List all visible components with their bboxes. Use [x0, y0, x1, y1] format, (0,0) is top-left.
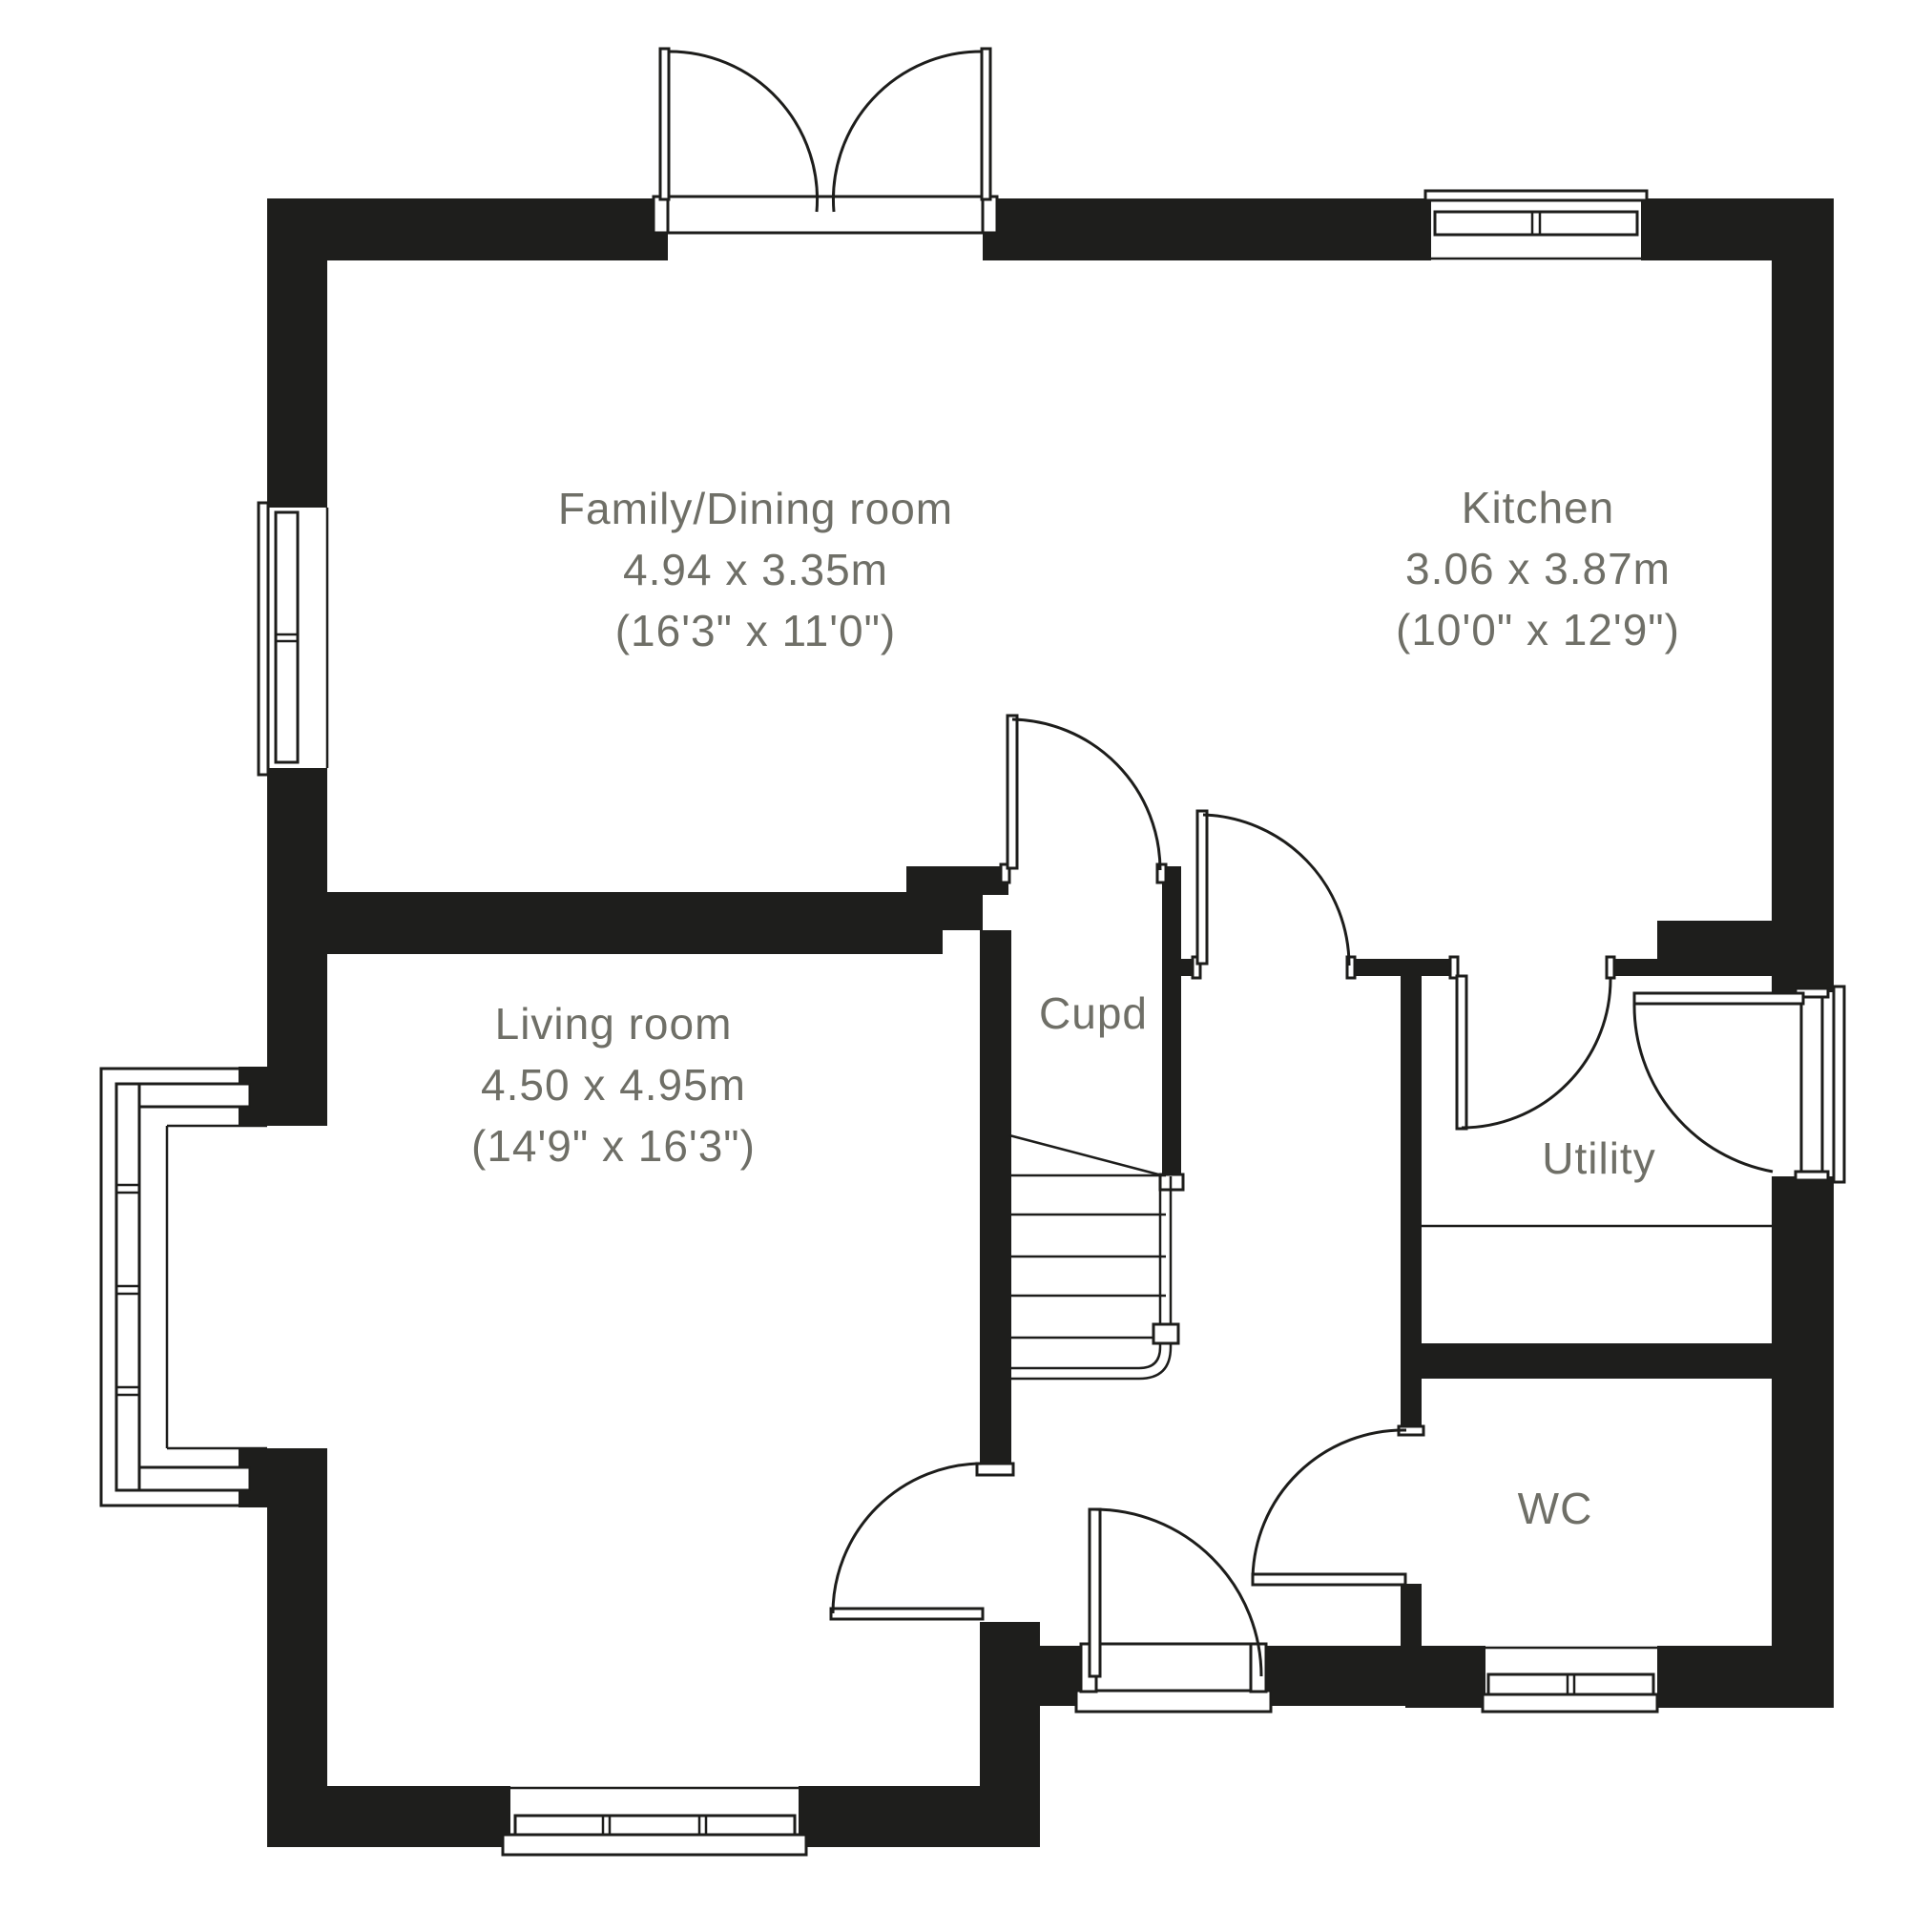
kitchen-size-metric: 3.06 x 3.87m [1405, 544, 1671, 593]
kitchen-door-swing-arc [1203, 815, 1349, 966]
stair-cut-line [1009, 1135, 1162, 1175]
stair-rail-curve-outer [1011, 1343, 1171, 1379]
french-door-right-swing-arc [833, 52, 982, 212]
family-dining-room-size-imperial: (16'3" x 11'0") [615, 606, 897, 655]
kitchen-door [1193, 811, 1355, 978]
bay-window [101, 1069, 267, 1506]
family-dining-room-size-metric: 4.94 x 3.35m [623, 545, 888, 594]
utility-door [1450, 957, 1614, 1129]
kitchen-window [1425, 191, 1647, 259]
wc-door [1253, 1426, 1423, 1585]
family-room-door-swing-arc [1012, 719, 1160, 870]
front-door [1076, 1509, 1271, 1712]
family-dining-room-label: Family/Dining room [558, 484, 953, 533]
living-room-size-imperial: (14'9" x 16'3") [471, 1121, 756, 1171]
cupboard-label: Cupd [1039, 988, 1148, 1038]
living-room-label: Living room [495, 999, 733, 1049]
family-room-door [1001, 716, 1166, 883]
living-room-window [503, 1788, 806, 1855]
family-room-window [259, 503, 327, 775]
wc-label: WC [1518, 1484, 1593, 1533]
staircase [1009, 1135, 1183, 1379]
living-room-door [831, 1464, 1013, 1619]
stair-rail-curve-inner [1011, 1343, 1160, 1368]
living-room-door-swing-arc [833, 1464, 983, 1613]
stair-newel-post [1153, 1324, 1178, 1343]
wc-door-swing-arc [1253, 1430, 1406, 1579]
exterior-walls [239, 198, 1834, 1847]
french-doors [654, 49, 997, 233]
kitchen-size-imperial: (10'0" x 12'9") [1396, 605, 1680, 654]
french-door-left-swing-arc [669, 52, 818, 212]
floor-plan-canvas: Family/Dining room 4.94 x 3.35m (16'3" x… [0, 0, 1932, 1932]
living-room-size-metric: 4.50 x 4.95m [481, 1060, 746, 1110]
utility-back-door [1634, 987, 1844, 1182]
kitchen-label: Kitchen [1462, 483, 1614, 532]
wc-window [1483, 1648, 1657, 1712]
floor-plan-page: Family/Dining room 4.94 x 3.35m (16'3" x… [0, 0, 1932, 1932]
utility-label: Utility [1542, 1133, 1655, 1183]
utility-door-swing-arc [1462, 977, 1610, 1128]
